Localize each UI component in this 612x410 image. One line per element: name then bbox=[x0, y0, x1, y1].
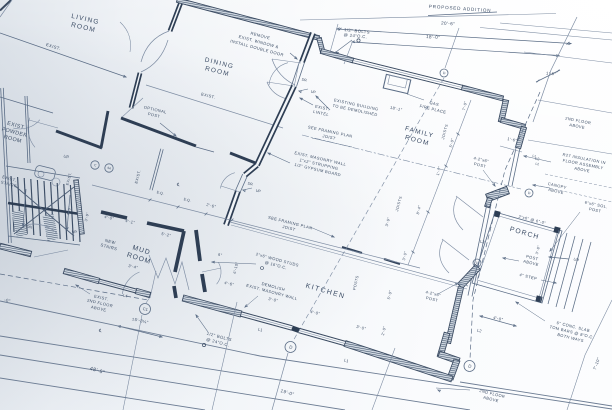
svg-text:3'-9": 3'-9" bbox=[84, 212, 90, 222]
svg-text:L4: L4 bbox=[123, 293, 129, 299]
svg-text:7'-10": 7'-10" bbox=[592, 356, 601, 370]
svg-text:18'-1": 18'-1" bbox=[390, 105, 404, 113]
svg-text:D: D bbox=[289, 344, 293, 350]
svg-text:REMOVEEXIST. WINDOW &INSTALL: REMOVEEXIST. WINDOW &INSTALL DOUBLE DOOR bbox=[230, 26, 288, 57]
svg-text:UP: UP bbox=[310, 90, 316, 95]
svg-text:3'-9": 3'-9" bbox=[402, 250, 408, 260]
svg-text:4-2"x6"POST: 4-2"x6"POST bbox=[424, 289, 442, 303]
svg-text:FAMILYROOM: FAMILYROOM bbox=[402, 125, 435, 148]
svg-text:R27 INSULATION INFLOOR ASSE: R27 INSULATION INFLOOR ASSEMBLYABOVE bbox=[560, 152, 606, 176]
svg-text:2ND FLOORABOVE: 2ND FLOORABOVE bbox=[564, 116, 592, 131]
svg-text:L2: L2 bbox=[477, 328, 483, 334]
svg-text:5'-0": 5'-0" bbox=[387, 289, 393, 299]
svg-text:EXIST.2ND FLOORABOVE: EXIST.2ND FLOORABOVE bbox=[85, 292, 114, 314]
svg-text:2'-6": 2'-6" bbox=[206, 202, 217, 209]
svg-text:19'-0": 19'-0" bbox=[280, 388, 295, 397]
svg-text:POSTS: POSTS bbox=[352, 275, 359, 290]
svg-text:LIVINGROOM: LIVINGROOM bbox=[69, 13, 101, 35]
svg-text:1'-6": 1'-6" bbox=[507, 136, 518, 143]
svg-text:5A: 5A bbox=[107, 166, 111, 171]
svg-text:EXIST.POWDERROOM: EXIST.POWDERROOM bbox=[0, 120, 30, 146]
svg-text:EXIST.: EXIST. bbox=[65, 172, 72, 186]
svg-text:EXISTING BUILDINGTO BE DEMO: EXISTING BUILDINGTO BE DEMOLISHED bbox=[332, 97, 379, 117]
svg-text:4'-1": 4'-1" bbox=[125, 218, 136, 225]
svg-text:L1: L1 bbox=[344, 358, 350, 364]
svg-text:2"x6" WOOD STUDS@ 16"O.C.: 2"x6" WOOD STUDS@ 16"O.C. bbox=[254, 251, 300, 273]
svg-text:EXIST.: EXIST. bbox=[134, 169, 141, 184]
svg-text:EXIST. MASONRY WALL1"x2" ST: EXIST. MASONRY WALL1"x2" STRUPPING1/2" G… bbox=[291, 150, 347, 178]
svg-text:KITCHEN: KITCHEN bbox=[305, 283, 347, 301]
svg-text:℄: ℄ bbox=[175, 182, 180, 188]
svg-text:DR: DR bbox=[301, 77, 307, 82]
svg-text:4-2"x6"POST: 4-2"x6"POST bbox=[472, 155, 490, 169]
svg-text:6": 6" bbox=[218, 253, 223, 258]
svg-text:1'-6": 1'-6" bbox=[546, 70, 557, 76]
svg-text:2ND FLOORABOVE: 2ND FLOORABOVE bbox=[478, 388, 506, 405]
svg-text:1'-9": 1'-9" bbox=[436, 165, 442, 175]
svg-text:UP: UP bbox=[573, 256, 580, 262]
svg-text:3'-0": 3'-0" bbox=[268, 296, 279, 303]
svg-text:OPTIONALPOST: OPTIONALPOST bbox=[142, 104, 168, 120]
svg-text:D: D bbox=[528, 191, 532, 196]
svg-text:4" STEP: 4" STEP bbox=[519, 272, 538, 281]
svg-text:5'-0": 5'-0" bbox=[449, 137, 455, 147]
svg-text:DININGROOM: DININGROOM bbox=[202, 56, 235, 78]
svg-text:℄: ℄ bbox=[97, 328, 102, 334]
svg-text:8'-4": 8'-4" bbox=[416, 204, 422, 214]
svg-text:JOISTS: JOISTS bbox=[395, 196, 403, 212]
svg-text:3'-8": 3'-8" bbox=[535, 245, 541, 255]
svg-text:UP: UP bbox=[255, 189, 261, 194]
svg-text:3'-9": 3'-9" bbox=[385, 216, 391, 227]
svg-text:C: C bbox=[94, 163, 98, 168]
svg-text:20'-6": 20'-6" bbox=[441, 21, 455, 27]
svg-text:GASFIRE PLACE: GASFIRE PLACE bbox=[419, 98, 448, 115]
svg-text:C1: C1 bbox=[142, 306, 149, 312]
svg-text:-0": -0" bbox=[4, 297, 12, 303]
svg-text:18'-0": 18'-0" bbox=[426, 34, 440, 40]
svg-text:PROPOSED ADDITION: PROPOSED ADDITION bbox=[429, 4, 492, 13]
svg-text:5'-2": 5'-2" bbox=[161, 231, 172, 238]
svg-text:4'-6": 4'-6" bbox=[224, 280, 235, 287]
svg-text:D: D bbox=[468, 363, 472, 369]
svg-text:4'-0": 4'-0" bbox=[310, 309, 321, 316]
svg-text:E.Q.: E.Q. bbox=[183, 197, 191, 203]
svg-text:E.Q.: E.Q. bbox=[156, 190, 164, 196]
svg-text:6"x6" SOL.POST: 6"x6" SOL.POST bbox=[583, 200, 608, 215]
svg-text:D: D bbox=[443, 71, 447, 76]
svg-text:3'-0": 3'-0" bbox=[356, 324, 367, 331]
svg-text:L1: L1 bbox=[258, 327, 264, 333]
svg-text:L2: L2 bbox=[535, 162, 540, 167]
svg-text:4'-0": 4'-0" bbox=[66, 206, 72, 216]
svg-text:2'-0": 2'-0" bbox=[381, 325, 387, 335]
svg-text:48'-6": 48'-6" bbox=[89, 366, 106, 376]
svg-text:SEE FRAMING PLANJOIST: SEE FRAMING PLANJOIST bbox=[306, 124, 353, 144]
svg-text:4'-0": 4'-0" bbox=[104, 214, 115, 221]
svg-text:EXIST.: EXIST. bbox=[201, 91, 216, 99]
svg-text:CANOPYABOVE: CANOPYABOVE bbox=[546, 181, 567, 196]
svg-text:NEWSTAIRS: NEWSTAIRS bbox=[100, 237, 119, 252]
svg-text:PORCH: PORCH bbox=[509, 226, 540, 241]
svg-text:UP: UP bbox=[63, 153, 70, 159]
svg-text:SEE FRAMING PLANJOIST: SEE FRAMING PLANJOIST bbox=[266, 215, 313, 236]
svg-text:6" CONC. SLABTOM BARS @ 8: 6" CONC. SLABTOM BARS @ 8"O.C.BOTH WAYS bbox=[548, 319, 596, 346]
svg-text:3'-4": 3'-4" bbox=[128, 263, 139, 270]
svg-text:1/2" BOLTS@ 24"O.C.: 1/2" BOLTS@ 24"O.C. bbox=[343, 27, 370, 40]
svg-text:DR: DR bbox=[247, 181, 253, 186]
svg-text:JOISTS: JOISTS bbox=[441, 124, 449, 140]
svg-text:EXIST.LINTEL: EXIST.LINTEL bbox=[313, 103, 331, 117]
